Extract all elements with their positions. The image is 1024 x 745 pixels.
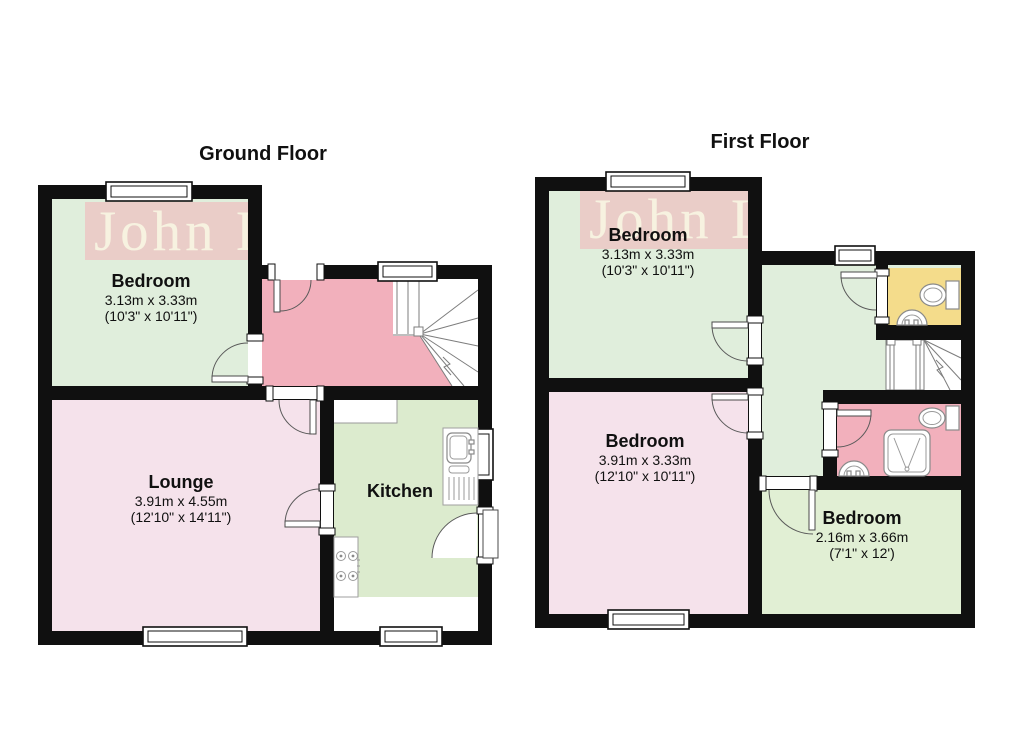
kitchen-bottom-window — [380, 627, 442, 646]
room-dim-metric: 3.91m x 4.55m — [135, 493, 228, 509]
bedroom-window — [106, 182, 192, 201]
first-floor-title: First Floor — [711, 131, 810, 153]
ground-floor-plan: Ground Floor John L — [38, 143, 498, 646]
floorplan-page: Ground Floor John L — [0, 0, 1024, 745]
sink-unit — [443, 428, 478, 505]
staircase-first — [886, 338, 961, 390]
toilet-icon — [919, 406, 959, 430]
bedroom2-floor — [542, 385, 755, 621]
room-label: Lounge — [149, 472, 214, 492]
ground-floor-title: Ground Floor — [199, 143, 327, 165]
landing-floor-lower — [755, 390, 823, 478]
room-label: Bedroom — [608, 225, 687, 245]
room-dim-metric: 3.91m x 3.33m — [599, 452, 692, 468]
landing-sliver — [876, 340, 886, 392]
room-dim-metric: 3.13m x 3.33m — [105, 292, 198, 308]
room-dim-imperial: (7'1" x 12') — [829, 545, 895, 561]
watermark-ground: John L — [85, 200, 275, 263]
landing-window — [835, 246, 875, 265]
room-dim-metric: 3.13m x 3.33m — [602, 246, 695, 262]
room-label: Kitchen — [367, 481, 433, 501]
floorplan-image: Ground Floor John L — [0, 0, 1024, 745]
room-label: Bedroom — [822, 508, 901, 528]
bedroom1-window — [606, 172, 690, 191]
first-floor-plan: First Floor John L — [535, 131, 975, 629]
bedroom2-window — [608, 610, 689, 629]
lounge-window — [143, 627, 247, 646]
room-dim-imperial: (10'3" x 10'11") — [105, 308, 198, 324]
room-dim-imperial: (10'3" x 10'11") — [602, 262, 695, 278]
hob-icon — [334, 537, 360, 597]
toilet-icon — [920, 281, 959, 309]
watermark-text: John L — [94, 200, 275, 263]
room-dim-imperial: (12'10" x 10'11") — [595, 468, 696, 484]
room-label: Bedroom — [111, 271, 190, 291]
room-dim-imperial: (12'10" x 14'11") — [131, 509, 232, 525]
room-label: Bedroom — [605, 431, 684, 451]
shower-icon — [884, 430, 930, 476]
room-dim-metric: 2.16m x 3.66m — [816, 529, 909, 545]
hall-window — [378, 262, 437, 281]
